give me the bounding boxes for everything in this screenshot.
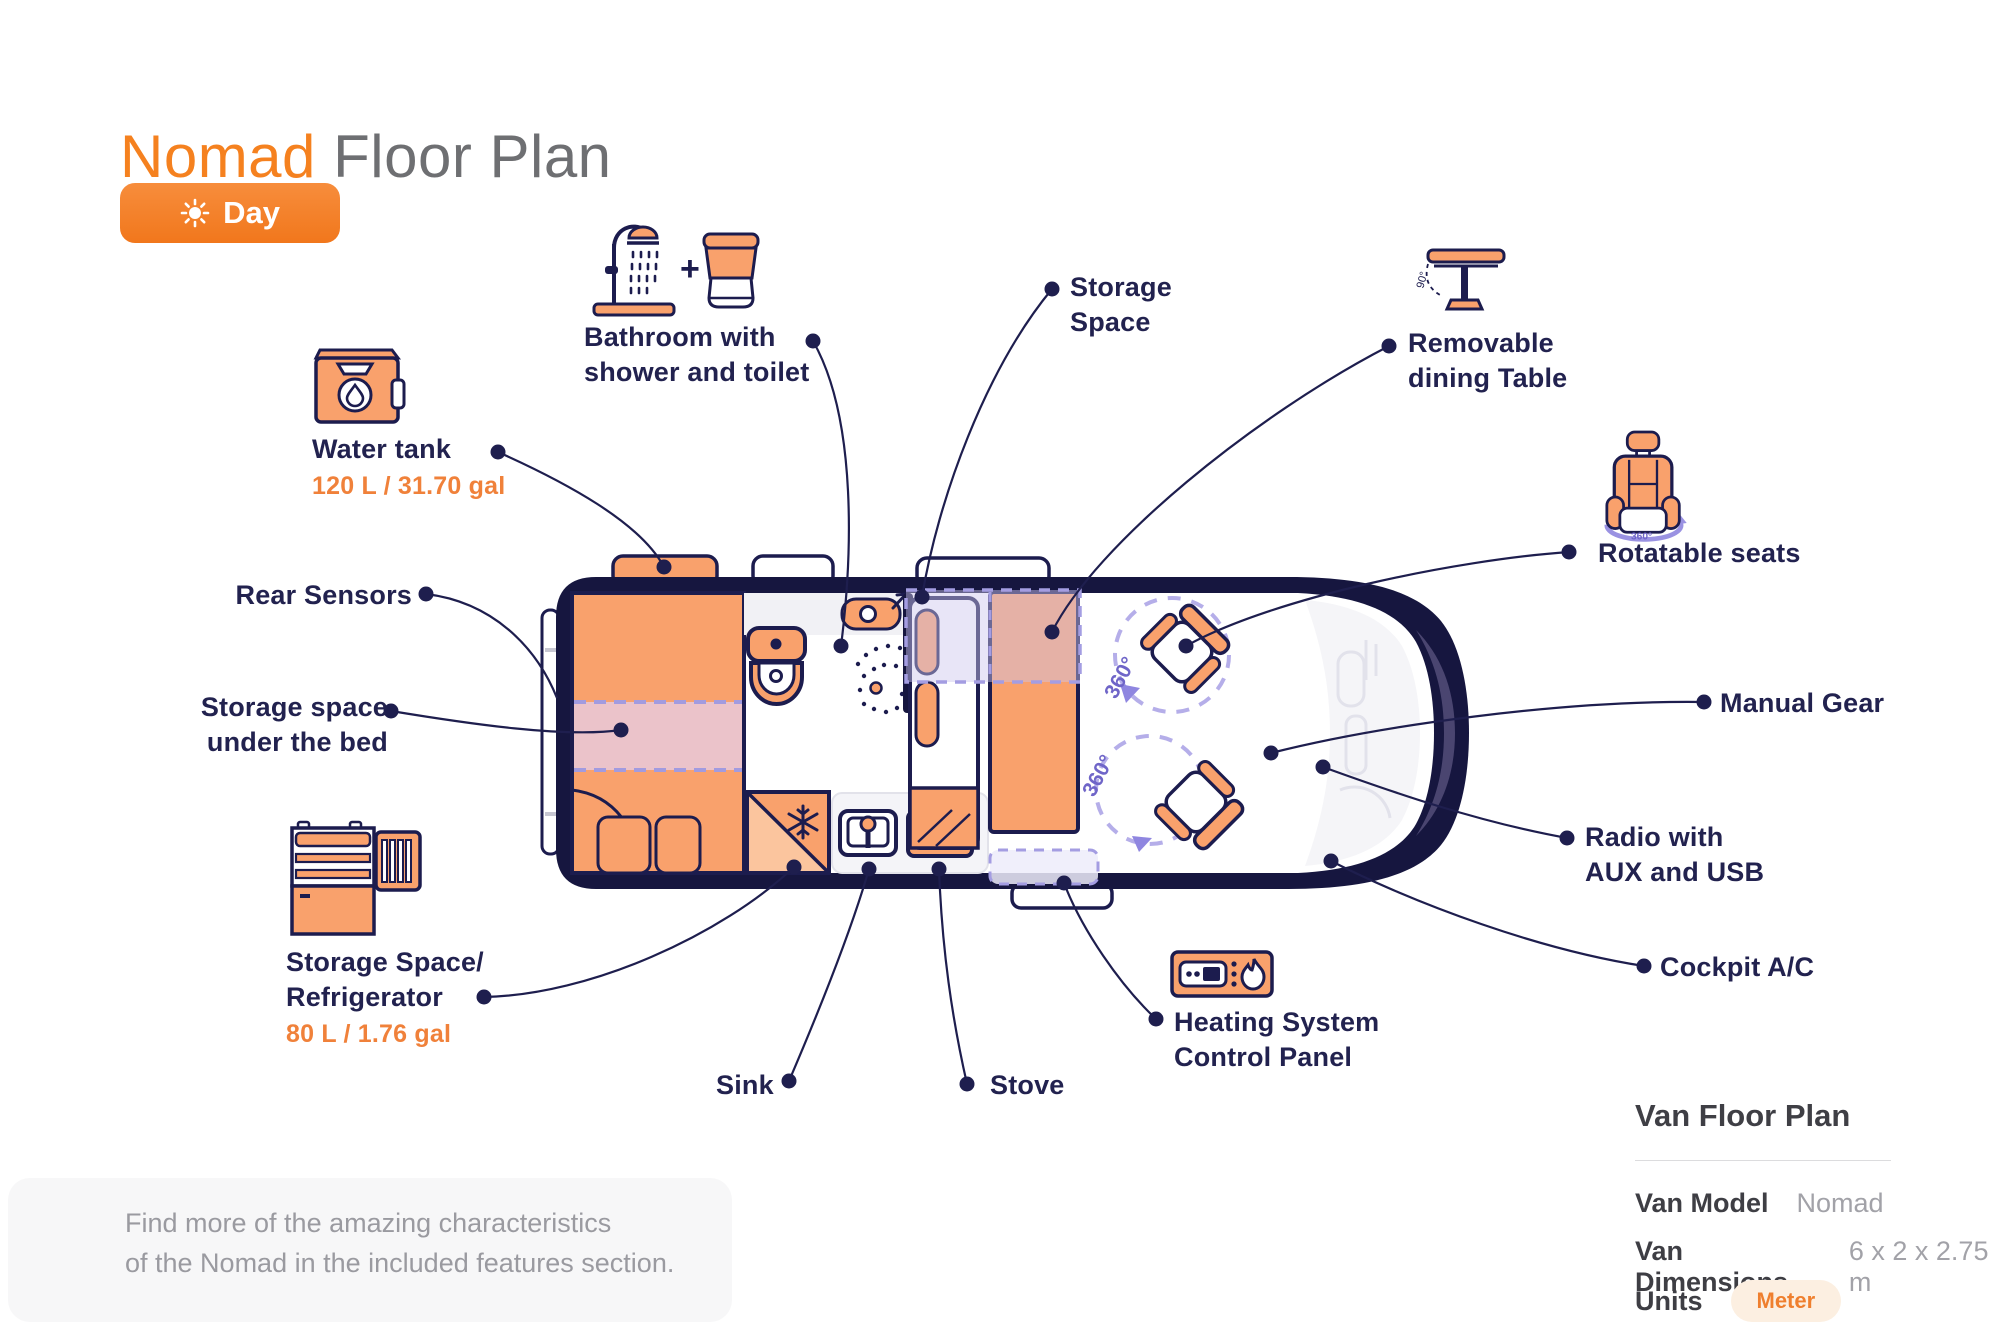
label-sink: Sink bbox=[716, 1068, 774, 1103]
refrigerator-unit bbox=[747, 792, 829, 873]
label-line: Sink bbox=[716, 1068, 774, 1103]
day-mode-button[interactable]: Day bbox=[120, 183, 340, 243]
dining-table-icon: 90° bbox=[1414, 240, 1510, 320]
label-manual-gear: Manual Gear bbox=[1720, 686, 1884, 721]
label-storage-under-bed: Storage space under the bed bbox=[201, 690, 388, 760]
label-value: 120 L / 31.70 gal bbox=[312, 469, 505, 504]
label-cockpit-ac: Cockpit A/C bbox=[1660, 950, 1814, 985]
page-title-accent: Nomad bbox=[120, 123, 316, 190]
sun-icon bbox=[180, 198, 210, 228]
storage-under-bed-area bbox=[574, 702, 742, 770]
callout-line-stove bbox=[939, 869, 967, 1084]
label-line: Stove bbox=[990, 1068, 1065, 1103]
label-stove: Stove bbox=[990, 1068, 1065, 1103]
label-line: Rear Sensors bbox=[236, 578, 413, 613]
label-storage-refrigerator: Storage Space/ Refrigerator 80 L / 1.76 … bbox=[286, 945, 484, 1052]
label-rotatable-seats: Rotatable seats bbox=[1598, 536, 1801, 571]
note-line: of the Nomad in the included features se… bbox=[125, 1243, 674, 1283]
info-row-value: 6 x 2 x 2.75 m bbox=[1849, 1236, 2000, 1298]
rotatable-seat-icon: 360° bbox=[1592, 426, 1696, 542]
info-row-van-model: Van Model Nomad bbox=[1635, 1188, 1884, 1219]
heating-unit-outline bbox=[990, 850, 1098, 884]
callout-line-sink bbox=[789, 869, 869, 1081]
label-line: Water tank bbox=[312, 432, 505, 467]
nomad-floor-plan-page: { "header": { "title_accent": "Nomad", "… bbox=[0, 0, 2000, 1334]
label-line: Bathroom with bbox=[584, 320, 809, 355]
label-radio: Radio with AUX and USB bbox=[1585, 820, 1764, 890]
refrigerator-icon bbox=[284, 814, 422, 938]
shower-toilet-icon: + bbox=[592, 214, 760, 318]
label-line: AUX and USB bbox=[1585, 855, 1764, 890]
label-line: shower and toilet bbox=[584, 355, 809, 390]
info-row-label: Van Model bbox=[1635, 1188, 1769, 1219]
heating-panel-icon bbox=[1168, 946, 1276, 1002]
table-angle-label: 90° bbox=[1415, 270, 1431, 289]
water-tank-icon bbox=[308, 342, 412, 428]
label-dining-table: Removable dining Table bbox=[1408, 326, 1567, 396]
label-line: Storage space bbox=[201, 690, 388, 725]
label-line: Control Panel bbox=[1174, 1040, 1379, 1075]
label-rear-sensors: Rear Sensors bbox=[236, 578, 413, 613]
label-bathroom: Bathroom with shower and toilet bbox=[584, 320, 809, 390]
info-row-value: Nomad bbox=[1797, 1188, 1884, 1219]
label-line: under the bed bbox=[201, 725, 388, 760]
note-text: Find more of the amazing characteristics… bbox=[125, 1203, 674, 1283]
label-line: Cockpit A/C bbox=[1660, 950, 1814, 985]
toilet bbox=[748, 628, 805, 704]
info-row-units: Units Meter bbox=[1635, 1280, 1841, 1322]
label-water-tank: Water tank 120 L / 31.70 gal bbox=[312, 432, 505, 504]
label-line: Radio with bbox=[1585, 820, 1764, 855]
note-line: Find more of the amazing characteristics bbox=[125, 1203, 674, 1243]
callout-line-water-tank bbox=[498, 452, 664, 567]
page-title: Nomad Floor Plan bbox=[120, 122, 612, 191]
label-line: Manual Gear bbox=[1720, 686, 1884, 721]
toilet-side-icon bbox=[704, 234, 758, 307]
page-title-rest: Floor Plan bbox=[333, 123, 611, 190]
label-value: 80 L / 1.76 gal bbox=[286, 1017, 484, 1052]
note-box: Find more of the amazing characteristics… bbox=[8, 1178, 732, 1322]
label-storage-space: Storage Space bbox=[1070, 270, 1172, 340]
callout-line-storage-space bbox=[922, 289, 1052, 597]
plus-glyph: + bbox=[680, 250, 700, 288]
sink-unit bbox=[840, 811, 896, 855]
units-badge[interactable]: Meter bbox=[1731, 1280, 1842, 1322]
label-line: Removable bbox=[1408, 326, 1567, 361]
label-line: Rotatable seats bbox=[1598, 536, 1801, 571]
info-panel-title: Van Floor Plan bbox=[1635, 1098, 1850, 1134]
label-line: Storage Space/ bbox=[286, 945, 484, 980]
label-line: Space bbox=[1070, 305, 1172, 340]
label-line: Refrigerator bbox=[286, 980, 484, 1015]
info-panel-divider bbox=[1635, 1160, 1891, 1161]
label-line: Heating System bbox=[1174, 1005, 1379, 1040]
label-line: dining Table bbox=[1408, 361, 1567, 396]
day-mode-label: Day bbox=[223, 195, 280, 231]
callout-line-rear-sensors bbox=[426, 594, 557, 698]
label-line: Storage bbox=[1070, 270, 1172, 305]
info-row-label: Units bbox=[1635, 1286, 1703, 1317]
label-heating: Heating System Control Panel bbox=[1174, 1005, 1379, 1075]
